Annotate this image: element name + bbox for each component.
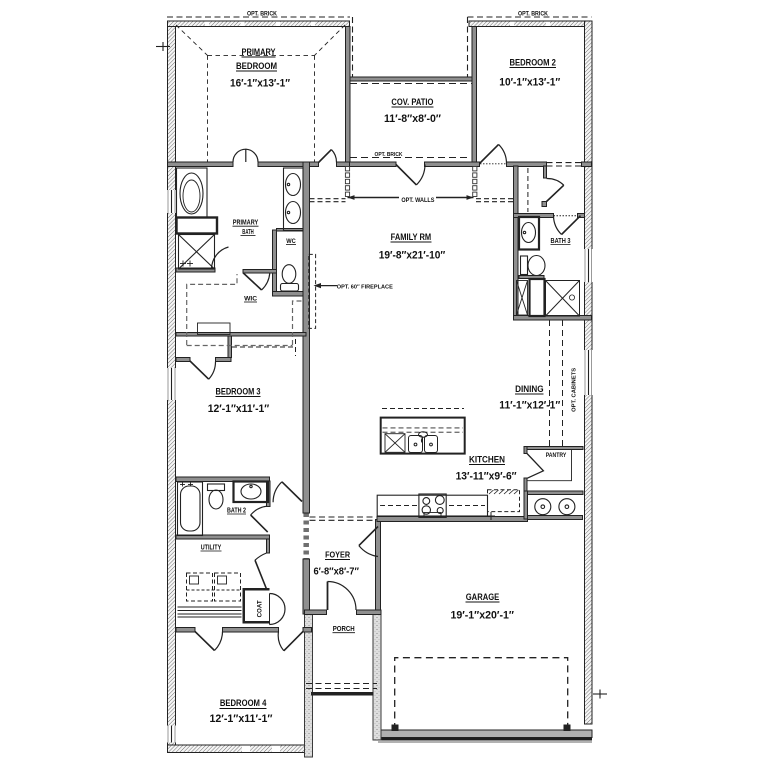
svg-text:19′-1″x20′-1″: 19′-1″x20′-1″ — [450, 610, 514, 622]
svg-text:COAT: COAT — [257, 600, 263, 617]
svg-text:OPT. BRICK: OPT. BRICK — [247, 12, 278, 18]
svg-text:BEDROOM 2: BEDROOM 2 — [509, 58, 556, 68]
svg-text:DINING: DINING — [515, 384, 544, 394]
svg-text:FOYER: FOYER — [325, 550, 350, 560]
svg-text:12′-1″x11′-1″: 12′-1″x11′-1″ — [208, 403, 270, 415]
svg-text:OPT. CABINETS: OPT. CABINETS — [572, 368, 578, 412]
svg-text:OPT. BRICK: OPT. BRICK — [518, 12, 549, 18]
svg-text:WIC: WIC — [244, 296, 257, 303]
svg-text:10′-1″x13′-1″: 10′-1″x13′-1″ — [499, 77, 561, 89]
svg-text:BATH 2: BATH 2 — [227, 508, 246, 515]
svg-text:BEDROOM 3: BEDROOM 3 — [216, 387, 261, 397]
svg-text:6′-8″x8′-7″: 6′-8″x8′-7″ — [313, 566, 359, 578]
svg-text:OPT. BRICK: OPT. BRICK — [375, 152, 403, 158]
svg-text:PRIMARY: PRIMARY — [242, 47, 276, 57]
svg-text:BATH 3: BATH 3 — [551, 238, 571, 245]
svg-text:FAMILY RM: FAMILY RM — [391, 232, 432, 242]
svg-text:UTILITY: UTILITY — [201, 545, 222, 552]
svg-text:16′-1″x13′-1″: 16′-1″x13′-1″ — [230, 78, 291, 90]
svg-text:PANTRY: PANTRY — [546, 453, 567, 459]
svg-text:12′-1″x11′-1″: 12′-1″x11′-1″ — [210, 713, 274, 725]
svg-text:BEDROOM 4: BEDROOM 4 — [220, 698, 267, 708]
svg-text:11′-1″x12′-1″: 11′-1″x12′-1″ — [499, 400, 561, 412]
svg-text:GARAGE: GARAGE — [466, 592, 500, 602]
svg-text:PRIMARY: PRIMARY — [233, 220, 259, 227]
svg-text:OPT. WALLS: OPT. WALLS — [401, 198, 434, 204]
svg-text:OPT. 60″ FIREPLACE: OPT. 60″ FIREPLACE — [337, 285, 393, 291]
svg-text:BATH: BATH — [242, 229, 254, 236]
svg-text:COV. PATIO: COV. PATIO — [391, 97, 433, 107]
svg-text:PORCH: PORCH — [333, 624, 355, 633]
svg-text:13′-11″x9′-6″: 13′-11″x9′-6″ — [456, 471, 518, 483]
svg-text:11′-8″x8′-0″: 11′-8″x8′-0″ — [384, 113, 442, 125]
svg-text:WC: WC — [286, 238, 296, 245]
svg-text:19′-8″x21′-10″: 19′-8″x21′-10″ — [379, 250, 446, 262]
svg-text:BEDROOM: BEDROOM — [236, 61, 277, 71]
svg-text:KITCHEN: KITCHEN — [469, 455, 505, 465]
